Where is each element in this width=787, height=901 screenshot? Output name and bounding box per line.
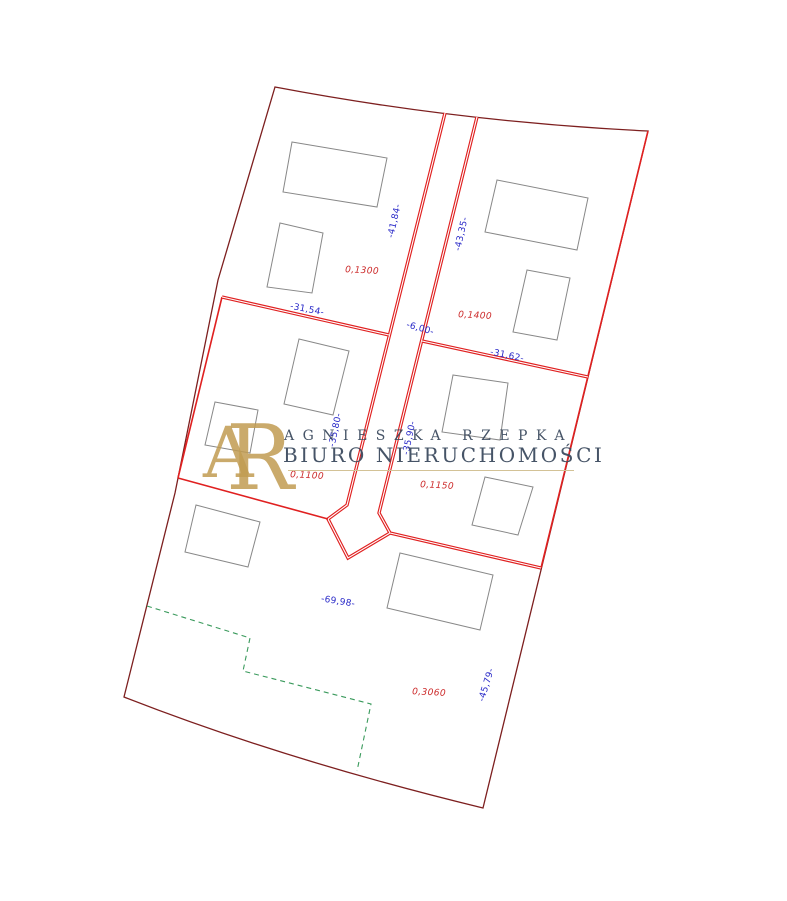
parcel-area-label: 0,3060 <box>412 687 446 699</box>
brand-gold-rule <box>288 470 574 471</box>
access-road <box>328 113 477 558</box>
brand-name: AGNIESZKA RZEPKA <box>284 428 573 444</box>
building-5 <box>284 339 349 415</box>
building-2 <box>267 223 323 293</box>
building-3 <box>485 180 588 250</box>
brand-subtitle: BIURO NIERUCHOMOŚCI <box>283 443 605 467</box>
east-parcel-edge <box>541 131 648 568</box>
parcel-area-label: 0,1300 <box>345 265 379 277</box>
cadastral-site-plan: -41,84- -43,35- -31,54- -6,00- -31,62- -… <box>0 0 787 901</box>
building-1 <box>283 142 387 207</box>
building-4 <box>513 270 570 340</box>
building-10 <box>387 553 493 630</box>
parcel-area-label: 0,1100 <box>290 470 324 482</box>
parcel-area-label: 0,1400 <box>458 310 492 322</box>
building-8 <box>472 477 533 535</box>
buildings <box>185 142 588 630</box>
zone-dashed-line <box>147 606 371 771</box>
building-9 <box>185 505 260 567</box>
parcel-area-label: 0,1150 <box>420 480 454 492</box>
